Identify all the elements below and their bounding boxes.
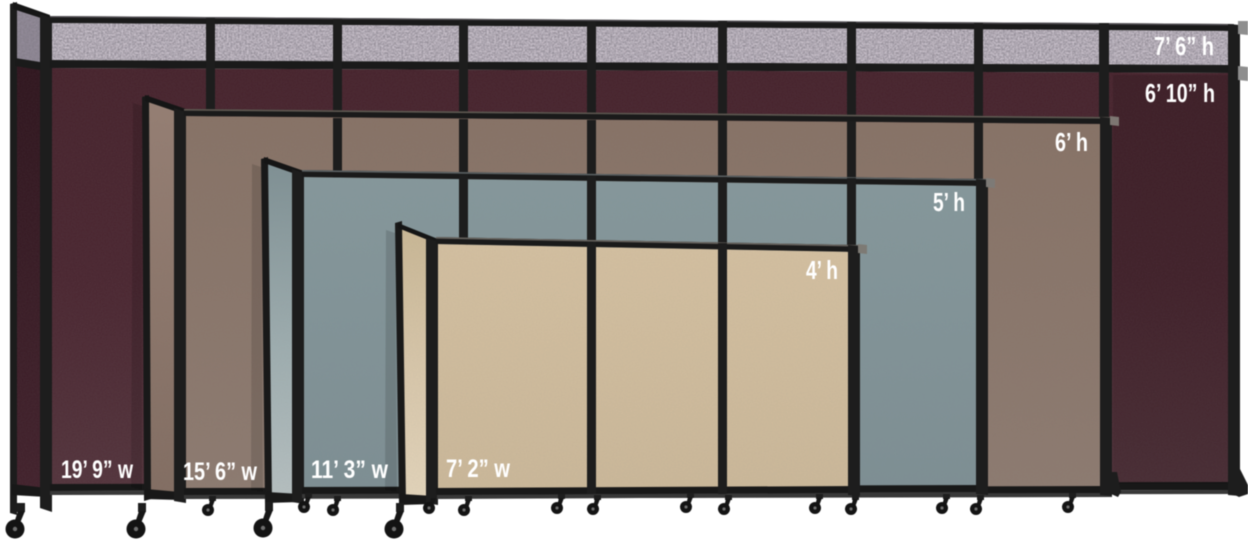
svg-text:4’ h: 4’ h [806,255,838,285]
svg-text:6’ h: 6’ h [1055,127,1088,157]
svg-text:5’ h: 5’ h [933,187,965,217]
svg-text:11’ 3” w: 11’ 3” w [311,456,388,484]
svg-text:19’ 9” w: 19’ 9” w [61,456,133,484]
svg-text:7’ 2” w: 7’ 2” w [446,455,510,483]
svg-text:6’ 10” h: 6’ 10” h [1145,78,1215,108]
svg-text:7’ 6” h: 7’ 6” h [1154,31,1214,61]
svg-text:15’ 6” w: 15’ 6” w [183,458,257,486]
